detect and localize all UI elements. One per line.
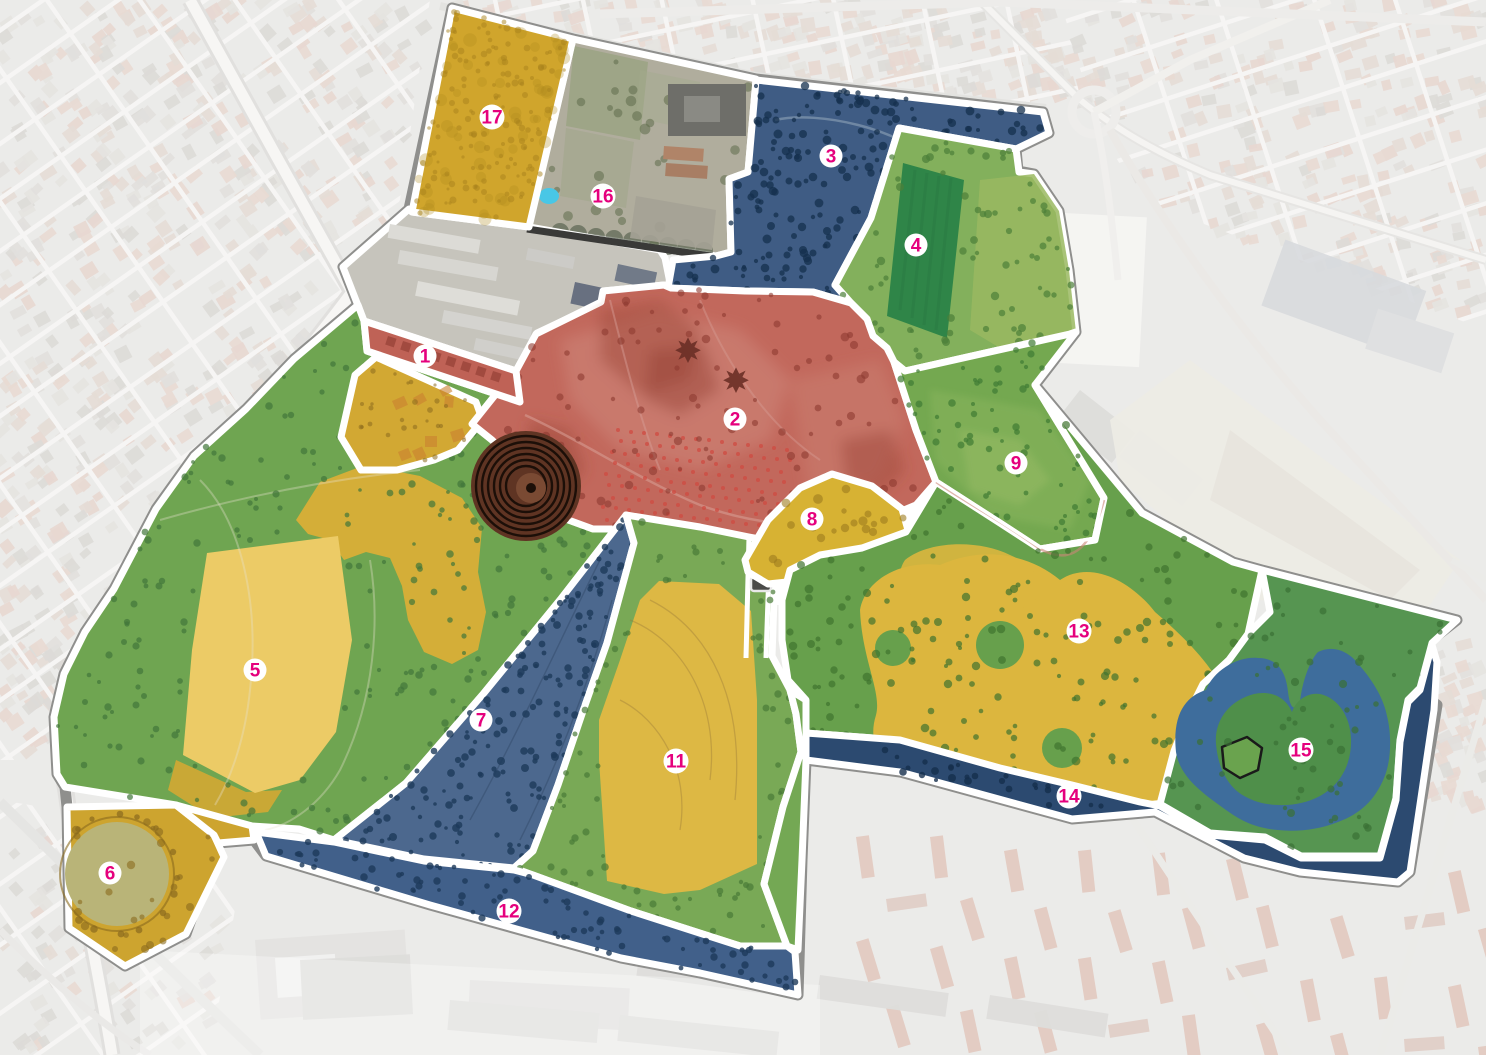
svg-text:1: 1 [420, 347, 431, 368]
svg-text:2: 2 [730, 410, 741, 431]
svg-text:17: 17 [481, 108, 502, 129]
svg-text:16: 16 [592, 187, 613, 208]
svg-text:15: 15 [1290, 741, 1312, 762]
svg-text:11: 11 [666, 752, 687, 773]
svg-text:5: 5 [250, 661, 261, 682]
svg-text:3: 3 [826, 147, 837, 168]
svg-text:4: 4 [911, 236, 922, 257]
svg-text:14: 14 [1058, 787, 1080, 808]
svg-text:9: 9 [1011, 454, 1022, 475]
svg-text:8: 8 [807, 510, 818, 531]
svg-text:12: 12 [498, 902, 519, 923]
svg-text:6: 6 [105, 864, 116, 885]
svg-text:7: 7 [476, 711, 487, 732]
svg-text:13: 13 [1068, 622, 1089, 643]
